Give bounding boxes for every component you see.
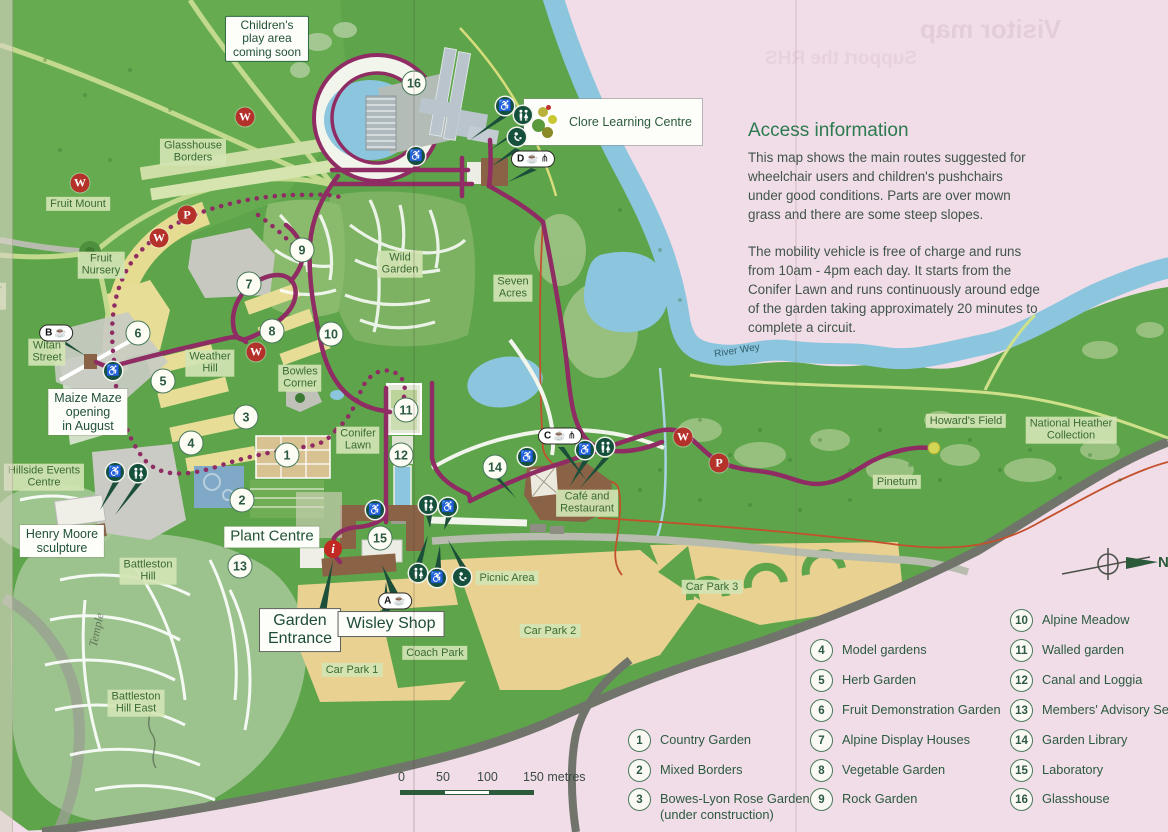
legend-label-2: Mixed Borders — [660, 759, 743, 778]
map-marker-6: 6 — [126, 321, 151, 346]
map-marker-13: 13 — [228, 554, 253, 579]
label-car-park-1: Car Park 1 — [322, 663, 383, 677]
facility-toilets — [129, 464, 147, 482]
wheelchair-icon: ♿ — [430, 573, 444, 584]
legend-item-10: 10Alpine Meadow — [1010, 609, 1130, 632]
label-wild-garden: WildGarden — [378, 251, 423, 278]
map-marker-15: 15 — [368, 526, 393, 551]
legend-item-14: 14Garden Library — [1010, 729, 1127, 752]
legend-item-6: 6Fruit Demonstration Garden — [810, 699, 1001, 722]
scale-tick-50: 50 — [436, 770, 450, 784]
badge-letter: C — [544, 431, 551, 442]
legend-item-3: 3Bowes-Lyon Rose Garden(under constructi… — [628, 788, 810, 823]
wheelchair-icon: ♿ — [498, 101, 512, 112]
label-battleston-hill-east: BattlestonHill East — [108, 690, 165, 717]
legend-number-2: 2 — [628, 759, 651, 782]
label-pinetum: Pinetum — [873, 475, 921, 489]
access-info-para2: The mobility vehicle is free of charge a… — [748, 242, 1040, 337]
scale-bar-segments — [400, 790, 534, 795]
label-howards-field: Howard's Field — [926, 414, 1006, 428]
label-hillside-events-centre: Hillside EventsCentre — [4, 464, 84, 491]
facility-wheelchair: ♿ — [428, 569, 446, 587]
label-cafe-and-restaurant: Café andRestaurant — [556, 490, 618, 517]
legend-item-13: 13Members' Advisory Service — [1010, 699, 1168, 722]
poi-marker-p: P — [710, 454, 729, 473]
wheelchair-icon: ♿ — [108, 467, 122, 478]
legend-item-12: 12Canal and Loggia — [1010, 669, 1142, 692]
clore-court — [467, 162, 481, 184]
label-car-park-2: Car Park 2 — [520, 624, 581, 638]
legend-label-3: Bowes-Lyon Rose Garden(under constructio… — [660, 788, 810, 823]
legend-item-11: 11Walled garden — [1010, 639, 1124, 662]
facility-wheelchair: ♿ — [366, 501, 384, 519]
legend-number-15: 15 — [1010, 759, 1033, 782]
facility-wheelchair: ♿ — [439, 498, 457, 516]
legend-label-10: Alpine Meadow — [1042, 609, 1130, 628]
legend-number-16: 16 — [1010, 788, 1033, 811]
legend-number-10: 10 — [1010, 609, 1033, 632]
badge-letter: D — [517, 154, 524, 165]
access-info-para1: This map shows the main routes suggested… — [748, 148, 1040, 224]
legend-label-6: Fruit Demonstration Garden — [842, 699, 1001, 718]
map-marker-3: 3 — [234, 405, 259, 430]
page-edge — [0, 0, 13, 832]
label-car-park-3: Car Park 3 — [682, 580, 743, 594]
label-witan-street: WitanStreet — [28, 339, 65, 366]
poi-marker-p: P — [178, 206, 197, 225]
legend-number-5: 5 — [810, 669, 833, 692]
map-marker-16: 16 — [402, 71, 427, 96]
refreshment-badge-a: A☕ — [378, 593, 412, 610]
label-clore-learning-centre: Clore Learning Centre — [524, 99, 702, 145]
map-marker-2: 2 — [230, 488, 255, 513]
map-marker-7: 7 — [237, 272, 262, 297]
cup-icon: ☕ — [54, 328, 66, 339]
refreshment-badge-c: C☕⋔ — [538, 428, 582, 445]
baby-change-icon — [456, 571, 469, 584]
refreshment-badge-d: D☕⋔ — [511, 151, 555, 168]
facility-wheelchair: ♿ — [106, 463, 124, 481]
legend-label-14: Garden Library — [1042, 729, 1127, 748]
legend-label-8: Vegetable Garden — [842, 759, 945, 778]
legend-number-4: 4 — [810, 639, 833, 662]
clore-building — [481, 158, 508, 186]
facility-wheelchair: ♿ — [576, 441, 594, 459]
legend-item-8: 8Vegetable Garden — [810, 759, 945, 782]
legend-item-9: 9Rock Garden — [810, 788, 917, 811]
poi-marker-w: W — [674, 428, 693, 447]
map-marker-14: 14 — [483, 455, 508, 480]
legend-number-11: 11 — [1010, 639, 1033, 662]
label-seven-acres: SevenAcres — [493, 275, 532, 302]
legend-label-5: Herb Garden — [842, 669, 916, 688]
badge-letter: B — [45, 328, 52, 339]
wheelchair-icon: ♿ — [368, 505, 382, 516]
scale-tick-0: 0 — [398, 770, 405, 784]
legend-item-16: 16Glasshouse — [1010, 788, 1110, 811]
label-plant-centre: Plant Centre — [224, 527, 319, 548]
facility-baby — [508, 128, 526, 146]
label-henry-moore: Henry Mooresculpture — [20, 525, 104, 557]
legend-number-9: 9 — [810, 788, 833, 811]
refreshment-badge-b: B☕ — [39, 325, 73, 342]
legend-label-4: Model gardens — [842, 639, 927, 658]
facility-baby — [453, 568, 471, 586]
map-marker-10: 10 — [319, 322, 344, 347]
wheelchair-icon: ♿ — [409, 151, 423, 162]
toilets-icon — [412, 567, 425, 580]
map-marker-1: 1 — [275, 443, 300, 468]
legend-label-9: Rock Garden — [842, 788, 917, 807]
label-maize-maze: Maize Mazeopeningin August — [48, 389, 127, 435]
cup-icon: ☕ — [393, 596, 405, 607]
toilets-icon — [422, 499, 435, 512]
cup-icon: ☕ — [553, 431, 565, 442]
poi-marker-w: W — [150, 229, 169, 248]
toilets-icon — [132, 467, 145, 480]
wheelchair-icon: ♿ — [106, 366, 120, 377]
clore-label-text: Clore Learning Centre — [569, 115, 692, 129]
poi-marker-w: W — [247, 343, 266, 362]
label-wisley-shop: Wisley Shop — [338, 611, 445, 637]
map-marker-8: 8 — [260, 319, 285, 344]
legend-number-1: 1 — [628, 729, 651, 752]
map-marker-4: 4 — [179, 431, 204, 456]
legend-label-13: Members' Advisory Service — [1042, 699, 1168, 718]
legend-number-7: 7 — [810, 729, 833, 752]
information-point-icon: i — [324, 540, 342, 558]
facility-wheelchair: ♿ — [518, 448, 536, 466]
scale-tick-150: 150 metres — [523, 770, 586, 784]
label-fruit-nursery: FruitNursery — [78, 252, 125, 279]
cup-icon: ☕ — [526, 154, 538, 165]
facility-toilets — [514, 106, 532, 124]
legend-label-16: Glasshouse — [1042, 788, 1110, 807]
map-marker-11: 11 — [394, 398, 419, 423]
label-garden-entrance: GardenEntrance — [259, 608, 341, 652]
facility-toilets — [596, 438, 614, 456]
legend-number-6: 6 — [810, 699, 833, 722]
label-bowles-corner: BowlesCorner — [278, 365, 321, 392]
clore-logo-icon — [532, 105, 562, 139]
legend-item-5: 5Herb Garden — [810, 669, 916, 692]
legend-label-1: Country Garden — [660, 729, 751, 748]
legend-item-1: 1Country Garden — [628, 729, 751, 752]
legend-item-2: 2Mixed Borders — [628, 759, 743, 782]
poi-marker-w: W — [236, 108, 255, 127]
label-national-heather-collection: National HeatherCollection — [1026, 417, 1117, 444]
map-marker-9: 9 — [290, 238, 315, 263]
label-battleston-hill: BattlestonHill — [120, 558, 177, 585]
facility-wheelchair: ♿ — [104, 362, 122, 380]
legend-item-15: 15Laboratory — [1010, 759, 1103, 782]
seven-acres-lake — [584, 252, 668, 332]
hillside-events-area — [92, 444, 186, 540]
legend-item-4: 4Model gardens — [810, 639, 927, 662]
scale-tick-100: 100 — [477, 770, 498, 784]
label-glasshouse-borders: GlasshouseBorders — [160, 139, 226, 166]
facility-toilets — [409, 564, 427, 582]
badge-letter: A — [384, 596, 391, 607]
legend-label-12: Canal and Loggia — [1042, 669, 1142, 688]
mobility-route-endpoint — [928, 442, 941, 455]
cutlery-icon: ⋔ — [541, 154, 549, 165]
legend-label-11: Walled garden — [1042, 639, 1124, 658]
wheelchair-icon: ♿ — [441, 502, 455, 513]
map-canvas: Visitor map Support the RHS Access infor… — [0, 0, 1168, 832]
label-coach-park: Coach Park — [402, 646, 467, 660]
label-conifer-lawn: ConiferLawn — [336, 427, 379, 454]
compass-north-label: N — [1158, 554, 1168, 571]
toilets-icon — [517, 109, 530, 122]
label-weather-hill: WeatherHill — [185, 350, 234, 377]
legend-number-12: 12 — [1010, 669, 1033, 692]
map-marker-5: 5 — [151, 369, 176, 394]
scale-bar: 0 50 100 150 metres — [398, 770, 608, 806]
map-marker-12: 12 — [389, 443, 414, 468]
legend-label-15: Laboratory — [1042, 759, 1103, 778]
label-childrens-play-area: Children'splay areacoming soon — [225, 16, 309, 62]
legend-number-3: 3 — [628, 788, 651, 811]
access-info-heading: Access information — [748, 120, 1040, 142]
cutlery-icon: ⋔ — [568, 431, 576, 442]
legend-number-13: 13 — [1010, 699, 1033, 722]
wheelchair-icon: ♿ — [578, 445, 592, 456]
access-info-panel: Access information This map shows the ma… — [748, 120, 1040, 355]
tree-cluster — [295, 393, 305, 403]
legend-number-14: 14 — [1010, 729, 1033, 752]
wheelchair-icon: ♿ — [520, 452, 534, 463]
facility-wheelchair: ♿ — [407, 147, 425, 165]
legend-item-7: 7Alpine Display Houses — [810, 729, 970, 752]
legend-label-7: Alpine Display Houses — [842, 729, 970, 748]
facility-wheelchair: ♿ — [496, 97, 514, 115]
legend-number-8: 8 — [810, 759, 833, 782]
facility-toilets — [419, 496, 437, 514]
baby-change-icon — [511, 131, 524, 144]
label-picnic-area: Picnic Area — [475, 571, 538, 585]
label-fruit-mount: Fruit Mount — [46, 197, 110, 211]
toilets-icon — [599, 441, 612, 454]
poi-marker-w: W — [71, 174, 90, 193]
